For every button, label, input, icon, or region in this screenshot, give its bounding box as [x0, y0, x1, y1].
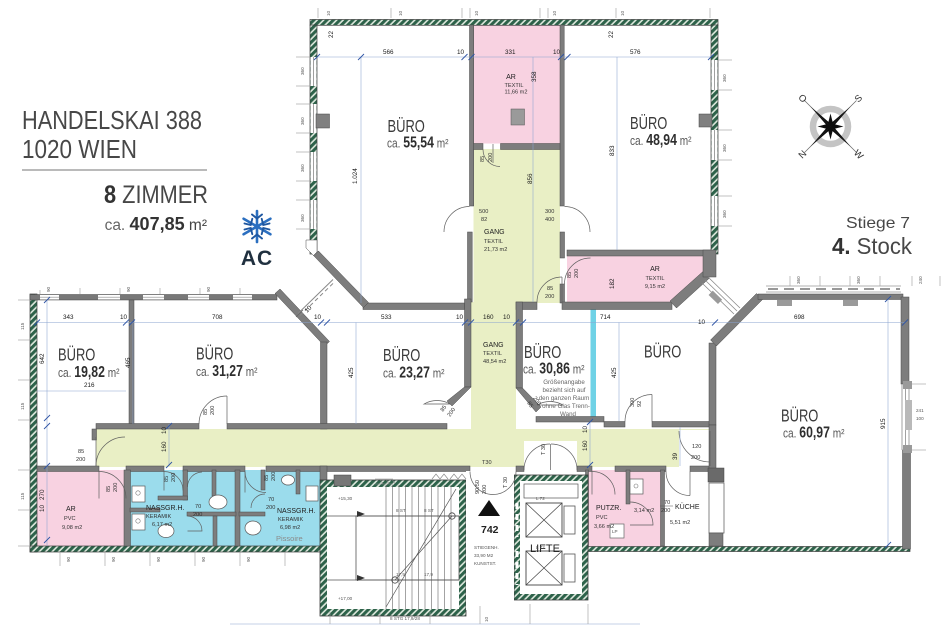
svg-text:360: 360 [722, 144, 727, 152]
svg-text:10: 10 [39, 504, 46, 512]
svg-text:90: 90 [201, 556, 206, 562]
svg-text:5,51 m2: 5,51 m2 [670, 520, 690, 526]
svg-text:360: 360 [722, 210, 727, 218]
svg-text:85: 85 [203, 409, 209, 415]
svg-text:NASSGR.H.: NASSGR.H. [277, 508, 316, 515]
svg-text:358: 358 [531, 71, 538, 82]
svg-text:8 ST: 8 ST [396, 508, 406, 513]
svg-text:Wand: Wand [560, 411, 576, 418]
svg-text:17,9: 17,9 [396, 572, 405, 577]
svg-text:331: 331 [505, 49, 516, 56]
svg-text:TEXTIL: TEXTIL [646, 276, 665, 282]
svg-text:AR: AR [506, 74, 516, 81]
svg-text:533: 533 [381, 314, 392, 321]
svg-text:100: 100 [916, 416, 924, 421]
svg-text:200: 200 [488, 153, 494, 162]
svg-text:10: 10 [503, 314, 511, 321]
svg-text:70: 70 [268, 497, 274, 503]
svg-text:10: 10 [620, 10, 625, 16]
svg-text:den ganzen Raum: den ganzen Raum [539, 395, 590, 402]
svg-text:PUTZR.: PUTZR. [596, 505, 621, 512]
svg-text:HANDELSKAI 388: HANDELSKAI 388 [22, 105, 202, 135]
svg-text:200: 200 [76, 457, 85, 463]
svg-text:10: 10 [484, 616, 489, 622]
svg-text:AR: AR [650, 266, 660, 273]
svg-text:1.024: 1.024 [352, 168, 359, 184]
svg-text:90: 90 [66, 556, 71, 562]
svg-text:bezieht sich auf: bezieht sich auf [543, 387, 586, 394]
svg-text:200: 200 [113, 483, 119, 492]
svg-text:22: 22 [608, 30, 615, 38]
svg-text:160: 160 [483, 314, 494, 321]
svg-text:200: 200 [193, 512, 202, 518]
svg-text:70: 70 [195, 504, 201, 510]
svg-text:KUNSTST.: KUNSTST. [474, 561, 496, 566]
svg-text:NASSGR.H.: NASSGR.H. [146, 505, 185, 512]
svg-text:PVC: PVC [596, 515, 608, 521]
svg-text:10: 10 [552, 10, 557, 16]
svg-text:856: 856 [527, 173, 534, 184]
svg-text:200: 200 [271, 472, 277, 481]
svg-text:10: 10 [553, 49, 561, 56]
svg-text:120: 120 [692, 444, 701, 450]
svg-text:400: 400 [545, 217, 554, 223]
svg-text:ohne Glas Trenn-: ohne Glas Trenn- [542, 403, 590, 410]
svg-text:21,73 m2: 21,73 m2 [484, 247, 507, 253]
svg-text:AR: AR [66, 506, 76, 513]
svg-text:KÜCHE: KÜCHE [675, 503, 700, 511]
svg-text:10: 10 [326, 10, 331, 16]
svg-text:240: 240 [918, 276, 923, 284]
svg-text:742: 742 [481, 524, 499, 536]
svg-text:8 ZIMMER: 8 ZIMMER [104, 181, 208, 209]
svg-text:10: 10 [398, 10, 403, 16]
svg-text:+15,30: +15,30 [338, 496, 353, 501]
svg-text:566: 566 [383, 49, 394, 56]
svg-text:39: 39 [672, 452, 679, 460]
svg-text:10: 10 [457, 49, 465, 56]
svg-text:Größenangabe: Größenangabe [543, 379, 585, 386]
svg-text:85: 85 [567, 272, 573, 278]
svg-text:90: 90 [111, 556, 116, 562]
svg-text:1020 WIEN: 1020 WIEN [22, 134, 137, 164]
svg-text:TEXTIL: TEXTIL [505, 83, 524, 89]
svg-text:10: 10 [698, 319, 706, 326]
svg-text:200: 200 [266, 505, 275, 511]
svg-text:200: 200 [661, 508, 670, 514]
svg-text:KERAMIK: KERAMIK [146, 514, 171, 520]
svg-text:STIEGENH.: STIEGENH. [474, 545, 499, 550]
svg-text:714: 714 [600, 314, 611, 321]
svg-text:642: 642 [39, 353, 46, 364]
svg-text:160: 160 [161, 441, 168, 452]
svg-text:115: 115 [20, 402, 25, 410]
svg-text:T 30: T 30 [503, 477, 509, 488]
svg-text:11,66 m2: 11,66 m2 [505, 90, 528, 96]
svg-text:360: 360 [796, 276, 801, 284]
svg-text:115: 115 [20, 322, 25, 330]
svg-text:PVC: PVC [64, 516, 76, 522]
svg-text:200: 200 [210, 406, 216, 415]
svg-text:576: 576 [630, 49, 641, 56]
svg-text:+17,00: +17,00 [338, 596, 353, 601]
svg-text:KERAMIK: KERAMIK [278, 517, 303, 523]
svg-text:T 30: T 30 [541, 444, 547, 455]
svg-text:TEXTIL: TEXTIL [483, 351, 502, 357]
svg-text:85: 85 [106, 486, 112, 492]
svg-text:T30: T30 [482, 460, 492, 466]
svg-text:10: 10 [120, 314, 128, 321]
svg-text:L 72: L 72 [536, 545, 545, 550]
svg-text:82: 82 [481, 217, 487, 223]
svg-text:360: 360 [300, 164, 305, 172]
svg-text:85: 85 [480, 156, 486, 162]
svg-text:90/50: 90/50 [475, 480, 481, 494]
svg-text:200: 200 [482, 485, 488, 494]
svg-text:BÜRO: BÜRO [644, 342, 681, 362]
svg-text:465: 465 [125, 357, 132, 368]
svg-text:90: 90 [156, 556, 161, 562]
svg-text:915: 915 [880, 418, 887, 429]
svg-text:ca. 407,85 m²: ca. 407,85 m² [105, 214, 207, 234]
svg-text:360: 360 [300, 67, 305, 75]
svg-text:90: 90 [46, 286, 51, 292]
svg-text:9,15 m2: 9,15 m2 [645, 284, 665, 290]
svg-text:GANG: GANG [484, 229, 505, 236]
svg-text:10: 10 [161, 426, 168, 434]
svg-text:500: 500 [479, 209, 488, 215]
svg-text:TEXTIL: TEXTIL [484, 239, 503, 245]
svg-text:708: 708 [212, 314, 223, 321]
svg-text:241: 241 [916, 408, 924, 413]
svg-text:Stiege 7: Stiege 7 [846, 215, 910, 232]
svg-text:3,66 m2: 3,66 m2 [594, 524, 614, 530]
svg-text:85: 85 [164, 476, 170, 482]
svg-text:48,54 m2: 48,54 m2 [483, 359, 506, 365]
svg-text:300: 300 [630, 398, 636, 407]
svg-text:343: 343 [63, 314, 74, 321]
svg-text:90: 90 [126, 286, 131, 292]
svg-text:10: 10 [474, 10, 479, 16]
svg-text:10: 10 [314, 314, 322, 321]
svg-text:GANG: GANG [483, 342, 504, 349]
svg-text:10: 10 [456, 314, 464, 321]
svg-text:85: 85 [547, 286, 553, 292]
svg-text:90: 90 [246, 556, 251, 562]
svg-text:3,14 m2: 3,14 m2 [634, 508, 654, 514]
svg-text:33,90 M2: 33,90 M2 [474, 553, 494, 558]
svg-text:833: 833 [609, 145, 616, 156]
svg-text:85: 85 [78, 449, 84, 455]
svg-text:200: 200 [691, 455, 700, 461]
svg-text:270: 270 [39, 489, 46, 500]
svg-text:92: 92 [637, 401, 643, 407]
svg-text:182: 182 [609, 278, 616, 289]
svg-text:300: 300 [545, 209, 554, 215]
svg-text:200: 200 [171, 473, 177, 482]
svg-text:6,17 m2: 6,17 m2 [152, 522, 172, 528]
svg-text:360: 360 [300, 214, 305, 222]
svg-text:17,9: 17,9 [424, 572, 433, 577]
svg-text:70: 70 [664, 500, 670, 506]
svg-text:216: 216 [84, 382, 95, 389]
svg-text:360: 360 [722, 74, 727, 82]
svg-text:22: 22 [328, 30, 335, 38]
svg-text:9,08 m2: 9,08 m2 [62, 525, 82, 531]
svg-text:90: 90 [206, 286, 211, 292]
svg-text:360: 360 [300, 117, 305, 125]
svg-text:425: 425 [348, 367, 355, 378]
svg-text:200: 200 [545, 294, 554, 300]
svg-text:LIFTE: LIFTE [530, 543, 560, 555]
svg-text:200: 200 [574, 269, 580, 278]
svg-text:L 72: L 72 [536, 496, 545, 501]
svg-text:425: 425 [611, 367, 618, 378]
svg-text:AC: AC [241, 247, 273, 270]
svg-text:160: 160 [582, 440, 589, 451]
svg-text:6,98 m2: 6,98 m2 [280, 525, 300, 531]
svg-text:4. Stock: 4. Stock [832, 233, 912, 259]
svg-text:10: 10 [582, 425, 589, 433]
svg-text:8 ST: 8 ST [424, 508, 434, 513]
svg-text:85: 85 [264, 475, 270, 481]
svg-text:698: 698 [794, 314, 805, 321]
svg-text:Pissoire: Pissoire [276, 534, 303, 543]
svg-text:8 STG 17,9/28: 8 STG 17,9/28 [390, 616, 420, 621]
svg-text:360: 360 [856, 276, 861, 284]
svg-text:115: 115 [20, 492, 25, 500]
